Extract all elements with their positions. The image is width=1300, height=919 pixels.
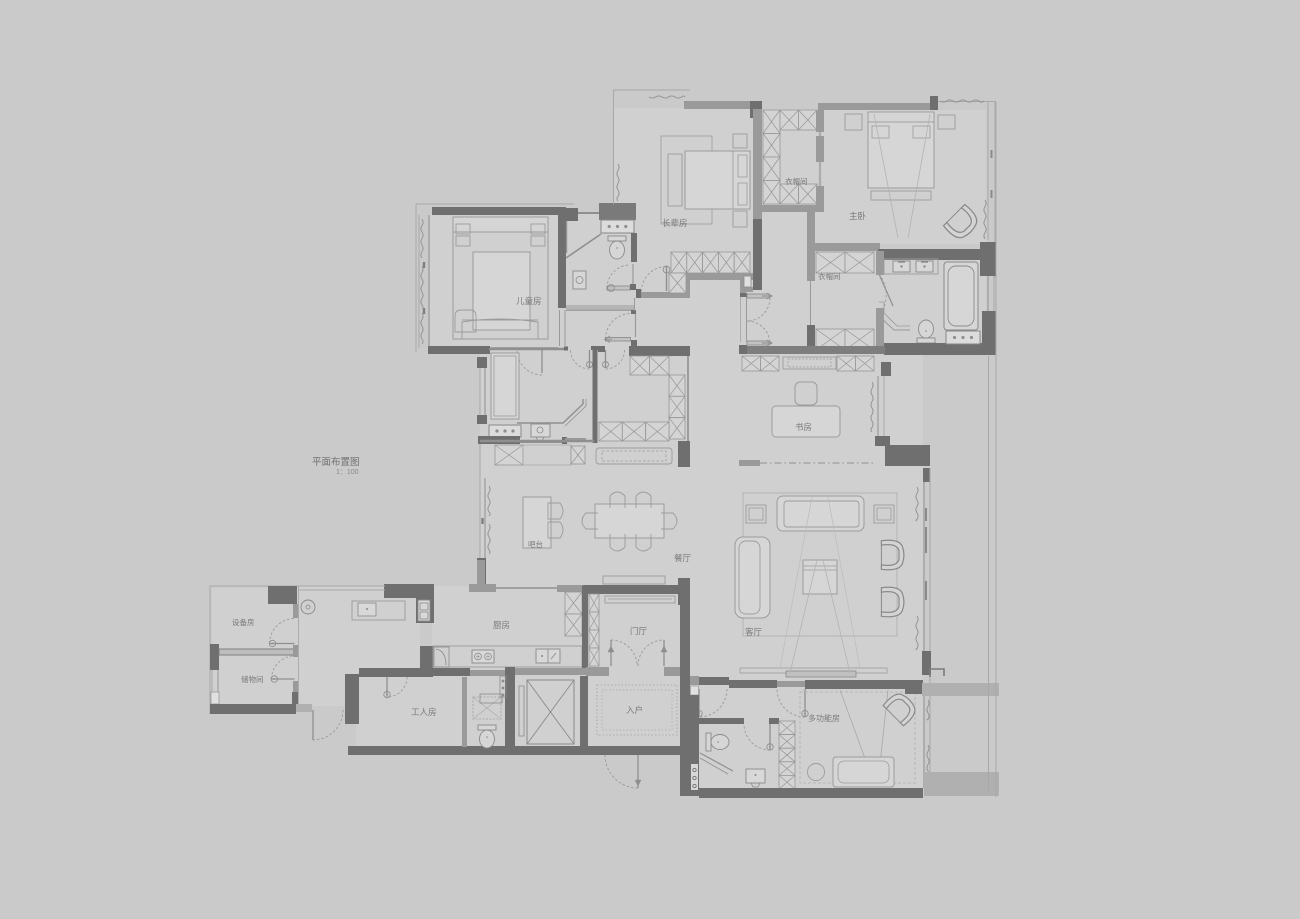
svg-text:客厅: 客厅 bbox=[745, 627, 763, 637]
svg-text:多功能房: 多功能房 bbox=[808, 713, 840, 723]
svg-text:餐厅: 餐厅 bbox=[674, 553, 692, 563]
svg-text:书房: 书房 bbox=[795, 422, 812, 432]
svg-text:平面布置图: 平面布置图 bbox=[312, 456, 360, 468]
svg-text:衣帽间: 衣帽间 bbox=[818, 271, 841, 281]
svg-text:儿童房: 儿童房 bbox=[516, 296, 542, 306]
svg-text:门厅: 门厅 bbox=[630, 626, 648, 636]
svg-text:厨房: 厨房 bbox=[493, 620, 510, 630]
svg-text:1：100: 1：100 bbox=[336, 469, 359, 476]
svg-text:工人房: 工人房 bbox=[411, 707, 437, 717]
svg-text:储物间: 储物间 bbox=[241, 674, 264, 684]
svg-text:入户: 入户 bbox=[626, 705, 643, 715]
svg-text:设备房: 设备房 bbox=[232, 617, 255, 627]
svg-text:主卧: 主卧 bbox=[849, 211, 867, 221]
svg-text:吧台: 吧台 bbox=[528, 539, 543, 549]
svg-text:衣帽间: 衣帽间 bbox=[785, 176, 808, 186]
svg-text:长辈房: 长辈房 bbox=[662, 218, 688, 228]
